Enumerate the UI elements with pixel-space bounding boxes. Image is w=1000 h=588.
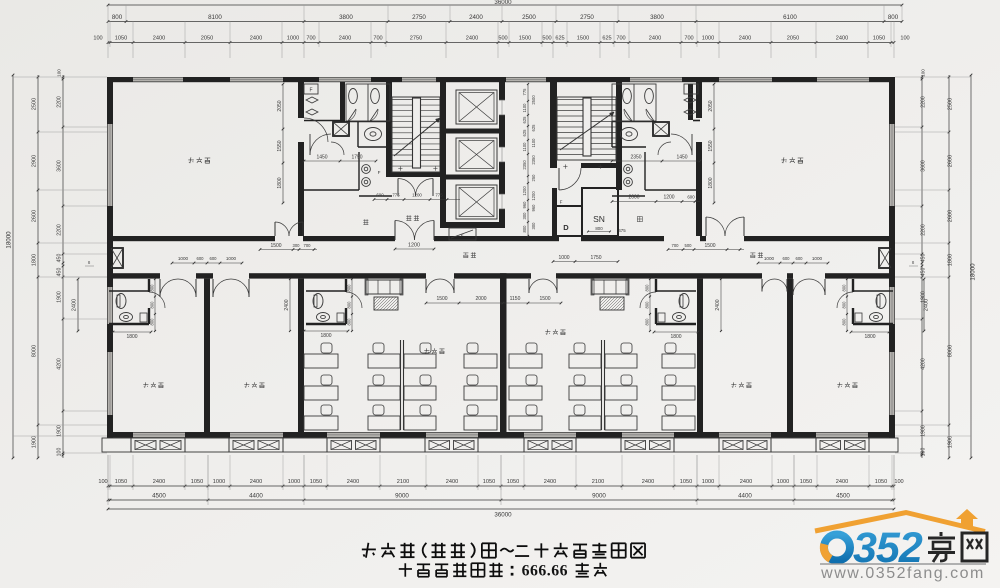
svg-text:2400: 2400 xyxy=(347,479,359,485)
svg-text:F: F xyxy=(560,200,563,205)
svg-text:1200: 1200 xyxy=(522,186,527,196)
svg-text:1200: 1200 xyxy=(531,191,536,201)
svg-text:600: 600 xyxy=(796,256,804,261)
svg-text:1500: 1500 xyxy=(519,36,531,42)
svg-text:3600: 3600 xyxy=(57,160,63,172)
svg-text:800: 800 xyxy=(112,14,123,21)
svg-text:2050: 2050 xyxy=(787,36,799,42)
svg-text:1100: 1100 xyxy=(522,142,527,152)
svg-text:800: 800 xyxy=(645,284,650,292)
svg-text:2000: 2000 xyxy=(475,296,486,302)
svg-text:625: 625 xyxy=(522,116,527,124)
svg-text:1100: 1100 xyxy=(531,138,536,148)
svg-text:800: 800 xyxy=(347,301,352,309)
svg-text:1200: 1200 xyxy=(663,195,674,201)
svg-text:F: F xyxy=(378,170,381,175)
svg-text:3600: 3600 xyxy=(921,160,927,172)
svg-text:3800: 3800 xyxy=(339,14,353,21)
svg-text:1800: 1800 xyxy=(708,177,714,188)
svg-text:2350: 2350 xyxy=(531,155,536,165)
svg-text:775: 775 xyxy=(522,88,527,96)
svg-text:2750: 2750 xyxy=(410,36,422,42)
svg-text:2600: 2600 xyxy=(948,210,954,222)
svg-text:450: 450 xyxy=(921,268,927,277)
svg-text:450: 450 xyxy=(57,254,63,263)
svg-text:800: 800 xyxy=(522,225,527,233)
svg-text:1500: 1500 xyxy=(577,36,589,42)
svg-text:775: 775 xyxy=(392,193,400,198)
svg-text:2200: 2200 xyxy=(921,96,927,108)
svg-text:300: 300 xyxy=(293,243,301,248)
svg-text:2100: 2100 xyxy=(397,479,409,485)
svg-text:775: 775 xyxy=(435,193,443,198)
svg-text:450: 450 xyxy=(57,268,63,277)
svg-text:2400: 2400 xyxy=(339,36,351,42)
svg-text:2400: 2400 xyxy=(466,36,478,42)
svg-text:2400: 2400 xyxy=(544,479,556,485)
svg-text:100: 100 xyxy=(900,36,909,42)
svg-text:2400: 2400 xyxy=(642,479,654,485)
svg-text:1000: 1000 xyxy=(178,256,189,261)
svg-text:1800: 1800 xyxy=(32,254,38,266)
svg-text:2350: 2350 xyxy=(522,160,527,170)
svg-text:2400: 2400 xyxy=(72,299,78,311)
svg-text:700: 700 xyxy=(684,36,693,42)
svg-text:1000: 1000 xyxy=(287,36,299,42)
svg-text:8: 8 xyxy=(88,260,91,265)
svg-text:475: 475 xyxy=(618,228,626,233)
svg-text:1900: 1900 xyxy=(57,425,63,437)
svg-text:100: 100 xyxy=(93,36,102,42)
svg-text:1050: 1050 xyxy=(800,479,812,485)
svg-text:960: 960 xyxy=(522,201,527,209)
svg-text:800: 800 xyxy=(645,318,650,326)
svg-text:2500: 2500 xyxy=(32,98,38,110)
svg-text:1200: 1200 xyxy=(408,243,420,249)
svg-text:2600: 2600 xyxy=(948,155,954,167)
svg-text:1450: 1450 xyxy=(316,155,327,161)
svg-text:800: 800 xyxy=(888,14,899,21)
svg-text:1050: 1050 xyxy=(115,479,127,485)
svg-text:1050: 1050 xyxy=(191,479,203,485)
svg-text:2400: 2400 xyxy=(469,14,483,21)
svg-text:100: 100 xyxy=(921,69,926,77)
svg-text:4500: 4500 xyxy=(836,493,850,500)
svg-text:500: 500 xyxy=(542,36,551,42)
svg-text:6100: 6100 xyxy=(783,14,797,21)
svg-text:100: 100 xyxy=(57,448,63,457)
svg-text:1000: 1000 xyxy=(213,479,225,485)
svg-text:960: 960 xyxy=(531,204,536,212)
svg-text:666.66: 666.66 xyxy=(522,563,568,580)
svg-text:700: 700 xyxy=(616,36,625,42)
svg-text:8000: 8000 xyxy=(32,345,38,357)
svg-text:1900: 1900 xyxy=(921,425,927,437)
svg-text:2400: 2400 xyxy=(924,299,930,311)
svg-text:1900: 1900 xyxy=(948,436,954,448)
svg-text:2200: 2200 xyxy=(921,224,927,236)
svg-text:8: 8 xyxy=(912,260,915,265)
svg-text:1500: 1500 xyxy=(539,296,550,302)
svg-text:2750: 2750 xyxy=(580,14,594,21)
svg-text:4200: 4200 xyxy=(57,358,63,370)
svg-text:D: D xyxy=(563,223,569,232)
svg-text:2500: 2500 xyxy=(531,95,536,105)
svg-text:700: 700 xyxy=(306,36,315,42)
svg-text:2400: 2400 xyxy=(153,479,165,485)
svg-text:36000: 36000 xyxy=(494,0,512,6)
svg-text:100: 100 xyxy=(98,479,107,485)
svg-text:300: 300 xyxy=(531,222,536,230)
svg-text:1750: 1750 xyxy=(351,155,362,161)
svg-text:1050: 1050 xyxy=(507,479,519,485)
svg-text:100: 100 xyxy=(921,448,927,457)
svg-text:8000: 8000 xyxy=(948,345,954,357)
svg-text:1800: 1800 xyxy=(277,177,283,188)
svg-text:2000: 2000 xyxy=(628,195,639,201)
svg-text:2400: 2400 xyxy=(649,36,661,42)
svg-text:1000: 1000 xyxy=(764,256,775,261)
svg-text:1900: 1900 xyxy=(57,291,63,303)
svg-text:800: 800 xyxy=(645,301,650,309)
svg-text:2200: 2200 xyxy=(57,96,63,108)
svg-text:1450: 1450 xyxy=(676,155,687,161)
svg-text:1000: 1000 xyxy=(226,256,237,261)
svg-text:800: 800 xyxy=(347,318,352,326)
svg-text:2400: 2400 xyxy=(715,299,721,310)
svg-text:1800: 1800 xyxy=(126,334,137,340)
svg-text:1000: 1000 xyxy=(288,479,300,485)
svg-text:2100: 2100 xyxy=(592,479,604,485)
svg-text:600: 600 xyxy=(197,256,205,261)
svg-text:2400: 2400 xyxy=(153,36,165,42)
svg-text:F: F xyxy=(461,233,464,238)
svg-text:1750: 1750 xyxy=(590,255,601,261)
svg-text:9000: 9000 xyxy=(592,493,606,500)
svg-text:2400: 2400 xyxy=(250,36,262,42)
svg-text:800: 800 xyxy=(150,301,155,309)
svg-text:F: F xyxy=(689,88,692,94)
svg-text:1000: 1000 xyxy=(777,479,789,485)
svg-text:4400: 4400 xyxy=(249,493,263,500)
svg-text:1500: 1500 xyxy=(270,243,281,249)
svg-text:1800: 1800 xyxy=(948,254,954,266)
svg-text:1500: 1500 xyxy=(704,243,715,249)
svg-text:800: 800 xyxy=(595,226,603,231)
svg-text:500: 500 xyxy=(498,36,507,42)
svg-text:2600: 2600 xyxy=(32,210,38,222)
svg-text:18000: 18000 xyxy=(970,263,977,281)
svg-text:800: 800 xyxy=(842,284,847,292)
svg-text:1050: 1050 xyxy=(483,479,495,485)
svg-text:625: 625 xyxy=(602,36,611,42)
svg-text:1800: 1800 xyxy=(864,334,875,340)
svg-text:1150: 1150 xyxy=(510,296,521,302)
svg-text:1050: 1050 xyxy=(873,36,885,42)
svg-text:2500: 2500 xyxy=(948,98,954,110)
svg-text:18000: 18000 xyxy=(6,231,13,249)
svg-text:2400: 2400 xyxy=(739,36,751,42)
svg-text:9000: 9000 xyxy=(395,493,409,500)
svg-text:625: 625 xyxy=(522,129,527,137)
svg-text:1200: 1200 xyxy=(412,193,422,198)
svg-text:2350: 2350 xyxy=(630,155,641,161)
svg-text:700: 700 xyxy=(373,36,382,42)
svg-text:700: 700 xyxy=(672,243,680,248)
svg-text:1000: 1000 xyxy=(812,256,823,261)
svg-text:800: 800 xyxy=(842,301,847,309)
svg-text:1550: 1550 xyxy=(277,140,283,151)
svg-text:600: 600 xyxy=(687,195,695,200)
svg-text:1000: 1000 xyxy=(558,255,569,261)
svg-text:100: 100 xyxy=(57,69,62,77)
svg-text:800: 800 xyxy=(842,318,847,326)
svg-text:1800: 1800 xyxy=(670,334,681,340)
svg-text:2400: 2400 xyxy=(836,36,848,42)
svg-text:2400: 2400 xyxy=(836,479,848,485)
svg-text:1550: 1550 xyxy=(708,140,714,151)
svg-text:1100: 1100 xyxy=(522,103,527,113)
svg-text:1050: 1050 xyxy=(115,36,127,42)
svg-text:4400: 4400 xyxy=(738,493,752,500)
svg-text:450: 450 xyxy=(921,254,927,263)
svg-text:1000: 1000 xyxy=(702,479,714,485)
svg-text:2400: 2400 xyxy=(740,479,752,485)
svg-text:2050: 2050 xyxy=(201,36,213,42)
svg-text:1000: 1000 xyxy=(702,36,714,42)
svg-text:2200: 2200 xyxy=(57,224,63,236)
svg-text:4200: 4200 xyxy=(921,358,927,370)
svg-text:4500: 4500 xyxy=(152,493,166,500)
svg-text:8100: 8100 xyxy=(208,14,222,21)
svg-text:100: 100 xyxy=(894,479,903,485)
svg-text:500: 500 xyxy=(685,243,693,248)
svg-text:250: 250 xyxy=(531,174,536,182)
svg-text:600: 600 xyxy=(783,256,791,261)
svg-text:2500: 2500 xyxy=(522,14,536,21)
svg-text:2400: 2400 xyxy=(446,479,458,485)
svg-text:300: 300 xyxy=(522,212,527,220)
svg-text:600: 600 xyxy=(210,256,218,261)
svg-text:800: 800 xyxy=(150,318,155,326)
svg-text:2400: 2400 xyxy=(284,299,290,310)
svg-text:2900: 2900 xyxy=(32,155,38,167)
svg-text:600: 600 xyxy=(376,193,384,198)
svg-text:700: 700 xyxy=(304,243,312,248)
svg-text:1900: 1900 xyxy=(32,436,38,448)
svg-text:625: 625 xyxy=(531,124,536,132)
svg-text:36000: 36000 xyxy=(494,512,512,519)
svg-text:F: F xyxy=(309,88,312,94)
svg-text:1050: 1050 xyxy=(875,479,887,485)
svg-text:SN: SN xyxy=(593,214,605,224)
svg-text:2050: 2050 xyxy=(708,100,714,111)
svg-text:1050: 1050 xyxy=(680,479,692,485)
svg-text:2750: 2750 xyxy=(412,14,426,21)
svg-text:800: 800 xyxy=(150,284,155,292)
svg-text:2400: 2400 xyxy=(250,479,262,485)
svg-text:2050: 2050 xyxy=(277,100,283,111)
svg-text:3800: 3800 xyxy=(650,14,664,21)
svg-text:www.0352fang.com: www.0352fang.com xyxy=(820,565,985,582)
svg-text:1050: 1050 xyxy=(310,479,322,485)
svg-text:1800: 1800 xyxy=(320,333,331,339)
svg-text:800: 800 xyxy=(347,284,352,292)
svg-text:1500: 1500 xyxy=(436,296,447,302)
svg-text:625: 625 xyxy=(555,36,564,42)
